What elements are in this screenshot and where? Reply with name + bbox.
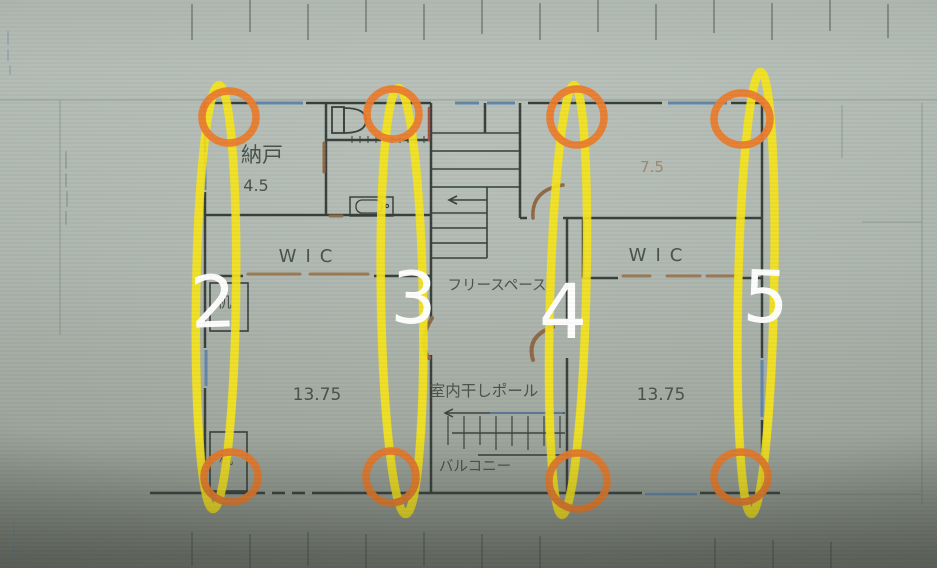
column-number-2: 2 (189, 259, 238, 345)
label-bedroom-left-size: 13.75 (293, 385, 342, 405)
label-room-7-5-size: 7.5 (640, 158, 664, 176)
column-number-4: 4 (539, 267, 587, 356)
label-balcony: バルコニー (439, 459, 511, 475)
label-nando: 納戸 (241, 143, 283, 167)
label-indoor-drying-pole: 室内干しポール (430, 382, 539, 400)
label-wic-right: WIC (629, 245, 692, 266)
label-nando-size: 4.5 (243, 176, 268, 195)
label-wic-left: WIC (279, 246, 342, 267)
floor-plan-photo: 納戸 4.5 WIC フリースペース WIC 7.5 13.75 13.75 室… (0, 0, 937, 568)
label-free-space: フリースペース (447, 278, 546, 294)
column-number-3: 3 (390, 255, 439, 341)
column-number-5: 5 (742, 254, 791, 340)
floor-plan-canvas: 納戸 4.5 WIC フリースペース WIC 7.5 13.75 13.75 室… (0, 0, 937, 568)
label-bedroom-right-size: 13.75 (637, 385, 686, 405)
